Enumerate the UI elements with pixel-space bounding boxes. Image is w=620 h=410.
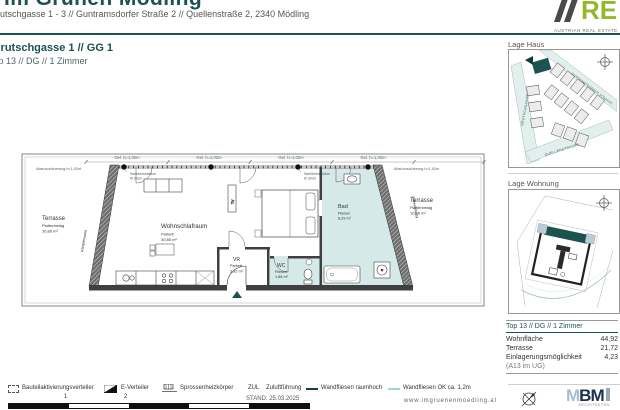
row-value: 4,23 xyxy=(604,353,618,362)
legend-label: E-Verteiler xyxy=(121,385,149,391)
legend-label: Zuluftführung xyxy=(266,385,301,391)
svg-text:Parkett: Parkett xyxy=(230,264,243,268)
room-label-vr: VR Parkett 3,92 m² xyxy=(230,257,244,274)
terrace-door xyxy=(240,167,256,183)
row-label: Einlagerungsmöglichkeit xyxy=(506,353,582,362)
top-dimension-line xyxy=(85,160,486,164)
bottom-wall xyxy=(89,285,413,291)
summary-table: Top 13 // DG // 1 Zimmer Wohnfläche 44,9… xyxy=(506,320,618,374)
svg-text:10,86 m²: 10,86 m² xyxy=(42,229,58,234)
bathtub xyxy=(324,266,360,283)
unit-title: Grutschgasse 1 // GG 1 xyxy=(0,42,113,54)
svg-text:8,29 m²: 8,29 m² xyxy=(338,217,352,221)
row-label: Wohnfläche xyxy=(506,335,543,344)
svg-text:10,86 m²: 10,86 m² xyxy=(410,211,426,216)
legend-label: Wandfliesen raumhoch xyxy=(321,385,382,391)
vr-door xyxy=(229,231,245,247)
building-flag xyxy=(525,56,533,65)
room-label-wohnschlafraum: Wohnschlafraum Parkett 30,85 m² xyxy=(161,223,207,242)
floor-plan: Gel. h=1,02m Gel. h=1,02m Gel. h=1,02m G… xyxy=(6,146,500,318)
row-value: 44,92 xyxy=(600,335,618,344)
column-label: Stahlbetonstütze Ø 20cm xyxy=(124,169,156,181)
lage-haus-title: Lage Haus xyxy=(508,40,544,49)
sprossenheizkoerper-icon xyxy=(162,384,177,393)
summary-bottom-rule xyxy=(506,373,618,374)
legend-label: Bauteilaktivierungsverteiler xyxy=(22,385,94,391)
svg-text:Ø 20cm: Ø 20cm xyxy=(304,177,316,181)
tv-board: TV xyxy=(228,185,236,212)
scale-bar xyxy=(8,403,310,409)
scale-tick: 2 xyxy=(124,394,127,400)
railing-height-label: Gel. h=1,02m xyxy=(360,155,386,160)
table-row: Einlagerungsmöglichkeit 4,23 xyxy=(506,353,618,362)
svg-text:Terrasse: Terrasse xyxy=(410,198,434,204)
building-footprint xyxy=(525,220,598,292)
floorplan-page: Im Grünen Mödling Grutschgasse 1 - 3 // … xyxy=(0,0,620,410)
washing-machine xyxy=(374,262,390,278)
svg-text:Kämpferwand: Kämpferwand xyxy=(80,230,88,253)
table-note: (A13 im UG) xyxy=(506,362,618,371)
svg-text:Wohnschlafraum: Wohnschlafraum xyxy=(161,223,207,230)
are-logo-text: RE xyxy=(581,0,617,22)
svg-text:Ø 20cm: Ø 20cm xyxy=(130,177,142,181)
compass-icon xyxy=(596,195,612,211)
legend-abbr: ZUL xyxy=(248,385,259,391)
e-verteiler-icon xyxy=(104,385,117,393)
kitchen xyxy=(116,271,214,285)
svg-text:Bad: Bad xyxy=(338,204,348,210)
svg-text:Fliesen: Fliesen xyxy=(338,212,350,216)
address-line: Grutschgasse 1 - 3 // Guntramsdorfer Str… xyxy=(0,9,309,19)
legend-label: Sprossenheizkörper xyxy=(180,385,233,391)
svg-text:Plattenbelag: Plattenbelag xyxy=(410,205,432,210)
website-text: www.imgruenenmoedling.at xyxy=(404,398,497,404)
table-row: Wohnfläche 44,92 xyxy=(506,335,618,344)
railing-height-label: Gel. h=1,02m xyxy=(196,155,222,160)
sidebar-divider xyxy=(508,173,618,174)
row-value: 21,72 xyxy=(600,344,618,353)
are-logo-mark: RE xyxy=(554,0,620,22)
highlighted-building xyxy=(532,58,552,74)
fall-protection-label-right: Absturzsicherung h=1,02m xyxy=(394,167,439,171)
svg-text:3,92 m²: 3,92 m² xyxy=(230,270,244,274)
svg-text:1,86 m²: 1,86 m² xyxy=(275,275,289,279)
wandfliesen-ok-icon xyxy=(388,388,400,390)
svg-text:TV: TV xyxy=(231,199,235,204)
architect-divider xyxy=(508,384,620,385)
svg-text:Parkett: Parkett xyxy=(161,232,175,237)
entrance-marker xyxy=(232,291,242,298)
header-rule xyxy=(0,33,620,35)
mbm-logo-bar xyxy=(606,388,610,401)
fall-protection-label-left: Absturzsicherung h=1,02m xyxy=(36,167,81,171)
row-label: Terrasse xyxy=(506,344,533,353)
bed xyxy=(255,190,318,237)
are-logo: RE AUSTRIAN REAL ESTATE xyxy=(554,0,620,33)
railing-height-label: Gel. h=1,02m xyxy=(114,155,140,160)
scale-tick: 1 xyxy=(64,394,67,400)
svg-text:30,85 m²: 30,85 m² xyxy=(161,237,177,242)
svg-text:WC: WC xyxy=(277,263,286,269)
plan-date: STAND: 25.03.2025 xyxy=(246,396,299,402)
lage-wohnung-title: Lage Wohnung xyxy=(508,179,559,188)
svg-text:Fliesen: Fliesen xyxy=(275,270,287,274)
svg-text:Stahlbetonstütze: Stahlbetonstütze xyxy=(130,172,156,176)
bad-washbasin xyxy=(344,174,360,184)
bauteilaktivierung-icon xyxy=(8,385,19,393)
svg-text:Plattenbelag: Plattenbelag xyxy=(42,223,64,228)
summary-title: Top 13 // DG // 1 Zimmer xyxy=(506,320,618,333)
north-compass-icon xyxy=(520,390,538,410)
wardrobe xyxy=(144,179,182,192)
compass-icon xyxy=(597,54,613,70)
mbm-logo-m: M xyxy=(566,386,579,405)
entrance-opening xyxy=(227,285,246,292)
sloped-wall-left xyxy=(89,165,119,287)
table-row: Terrasse 21,72 xyxy=(506,344,618,353)
legend-label: Wandfliesen OK ca. 1,2m xyxy=(403,385,471,391)
unit-subtitle: Top 13 // DG // 1 Zimmer xyxy=(0,56,88,66)
sloped-wall-label-left: Kämpferwand xyxy=(80,230,88,253)
room-label-terrasse-left: Terrasse Plattenbelag 10,86 m² xyxy=(42,216,66,234)
site-map: GUNTRAMSDORFER STRASSE GRUTSCHGASSE QUEL… xyxy=(508,49,620,168)
room-label-terrasse-right: Terrasse Plattenbelag 10,86 m² xyxy=(410,198,434,216)
svg-text:Stahlbetonstütze: Stahlbetonstütze xyxy=(304,172,330,176)
table xyxy=(150,244,174,256)
glass-facade xyxy=(114,166,378,168)
mbm-logo: MBM ARCHITEKTEN xyxy=(566,386,610,407)
svg-text:VR: VR xyxy=(233,257,240,263)
railing-height-label: Gel. h=1,02m xyxy=(278,155,304,160)
svg-text:Terrasse: Terrasse xyxy=(42,216,66,222)
wandfliesen-raumhoch-icon xyxy=(306,388,318,390)
unit-location-map xyxy=(508,189,620,314)
